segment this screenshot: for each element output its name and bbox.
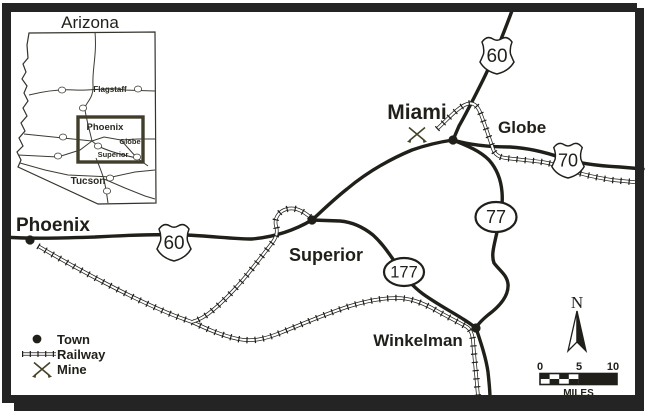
- shield-sr177-number: 177: [390, 264, 418, 282]
- legend-item-mine: Mine: [32, 362, 87, 378]
- railway-superior-branch: [192, 208, 310, 322]
- shield-us60-north: 60: [480, 38, 514, 74]
- shield-sr177: 177: [384, 258, 424, 286]
- town-dot-phoenix: [25, 235, 34, 244]
- scale-end-label: 10: [607, 361, 619, 373]
- scale-start-label: 0: [537, 361, 543, 373]
- label-miami: Miami: [387, 101, 447, 124]
- label-globe: Globe: [498, 118, 546, 137]
- label-superior: Superior: [289, 245, 363, 265]
- shield-us60-west-number: 60: [163, 233, 184, 254]
- inset-label-superior: Superior: [98, 150, 129, 159]
- scale-bar: 0 5 10 MILES: [537, 361, 619, 399]
- inset-title: Arizona: [61, 13, 119, 32]
- legend-item-railway: Railway: [22, 347, 106, 362]
- mine-icon-miami: [407, 128, 427, 144]
- shield-us60-north-number: 60: [486, 46, 507, 67]
- scale-bar-graphic: [540, 374, 617, 385]
- town-dot-winkelman: [471, 323, 480, 332]
- inset-map: Arizona Flagstaff Phoenix Globe Supe: [17, 13, 156, 204]
- shield-us70: 70: [552, 143, 584, 178]
- mine-icon: [32, 363, 52, 379]
- inset-label-globe: Globe: [119, 137, 140, 146]
- inset-label-tucson: Tucson: [71, 176, 106, 187]
- legend-town-label: Town: [57, 332, 90, 347]
- route-shields: 60 60 70 77 177: [157, 38, 584, 286]
- road-sr77: [453, 140, 508, 328]
- map-page: 60 60 70 77 177 Phoenix Superior Miami G: [0, 0, 645, 411]
- town-dot-icon: [33, 335, 42, 344]
- legend-railway-label: Railway: [57, 347, 106, 362]
- shield-sr77: 77: [476, 202, 517, 232]
- town-dot-superior: [307, 215, 316, 224]
- legend-mine-label: Mine: [57, 362, 87, 377]
- compass: N: [568, 293, 586, 351]
- label-winkelman: Winkelman: [373, 331, 463, 350]
- shield-sr77-number: 77: [486, 207, 506, 227]
- shield-us70-number: 70: [558, 151, 578, 171]
- inset-label-flagstaff: Flagstaff: [93, 85, 127, 94]
- shield-us60-west: 60: [157, 225, 191, 261]
- compass-north-label: N: [571, 293, 583, 312]
- town-dot-globe: [448, 135, 457, 144]
- legend: Town Railway Mine: [22, 332, 106, 378]
- inset-label-phoenix: Phoenix: [87, 122, 125, 133]
- scale-mid-label: 5: [576, 361, 582, 373]
- label-phoenix: Phoenix: [16, 215, 90, 236]
- north-arrow-icon: [568, 311, 586, 351]
- legend-item-town: Town: [33, 332, 90, 347]
- arizona-route-map: 60 60 70 77 177 Phoenix Superior Miami G: [0, 0, 645, 411]
